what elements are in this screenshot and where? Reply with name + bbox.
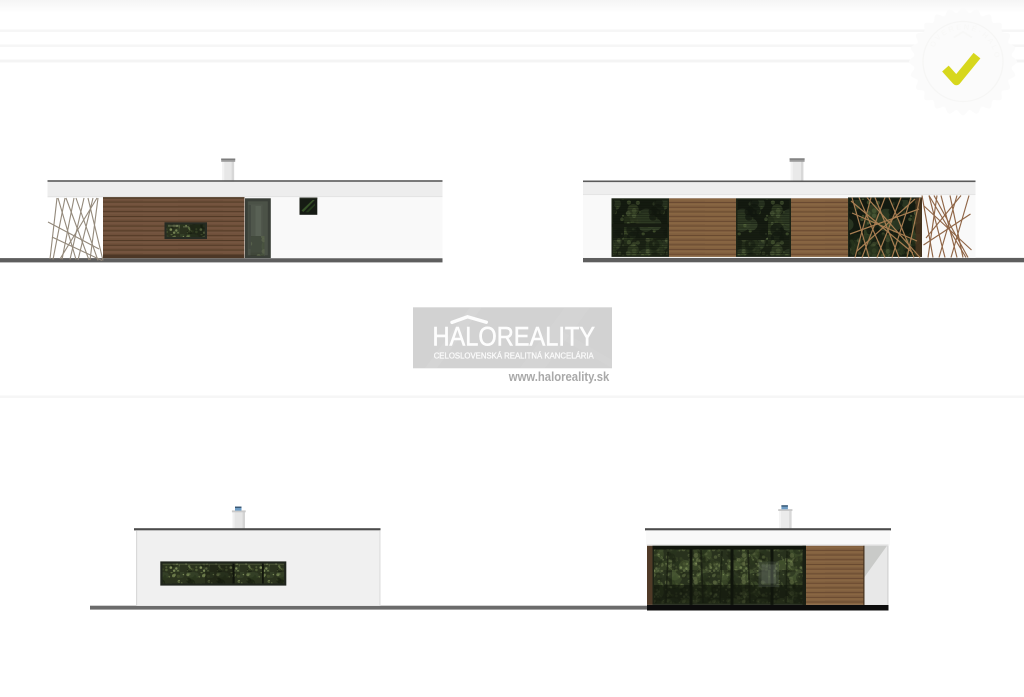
svg-text:HALOREALITY: HALOREALITY bbox=[433, 322, 596, 352]
svg-text:CELOSLOVENSKÁ REALITNÁ KANCELÁ: CELOSLOVENSKÁ REALITNÁ KANCELÁRIA bbox=[434, 352, 595, 361]
svg-text:www.haloreality.sk: www.haloreality.sk bbox=[508, 369, 610, 384]
